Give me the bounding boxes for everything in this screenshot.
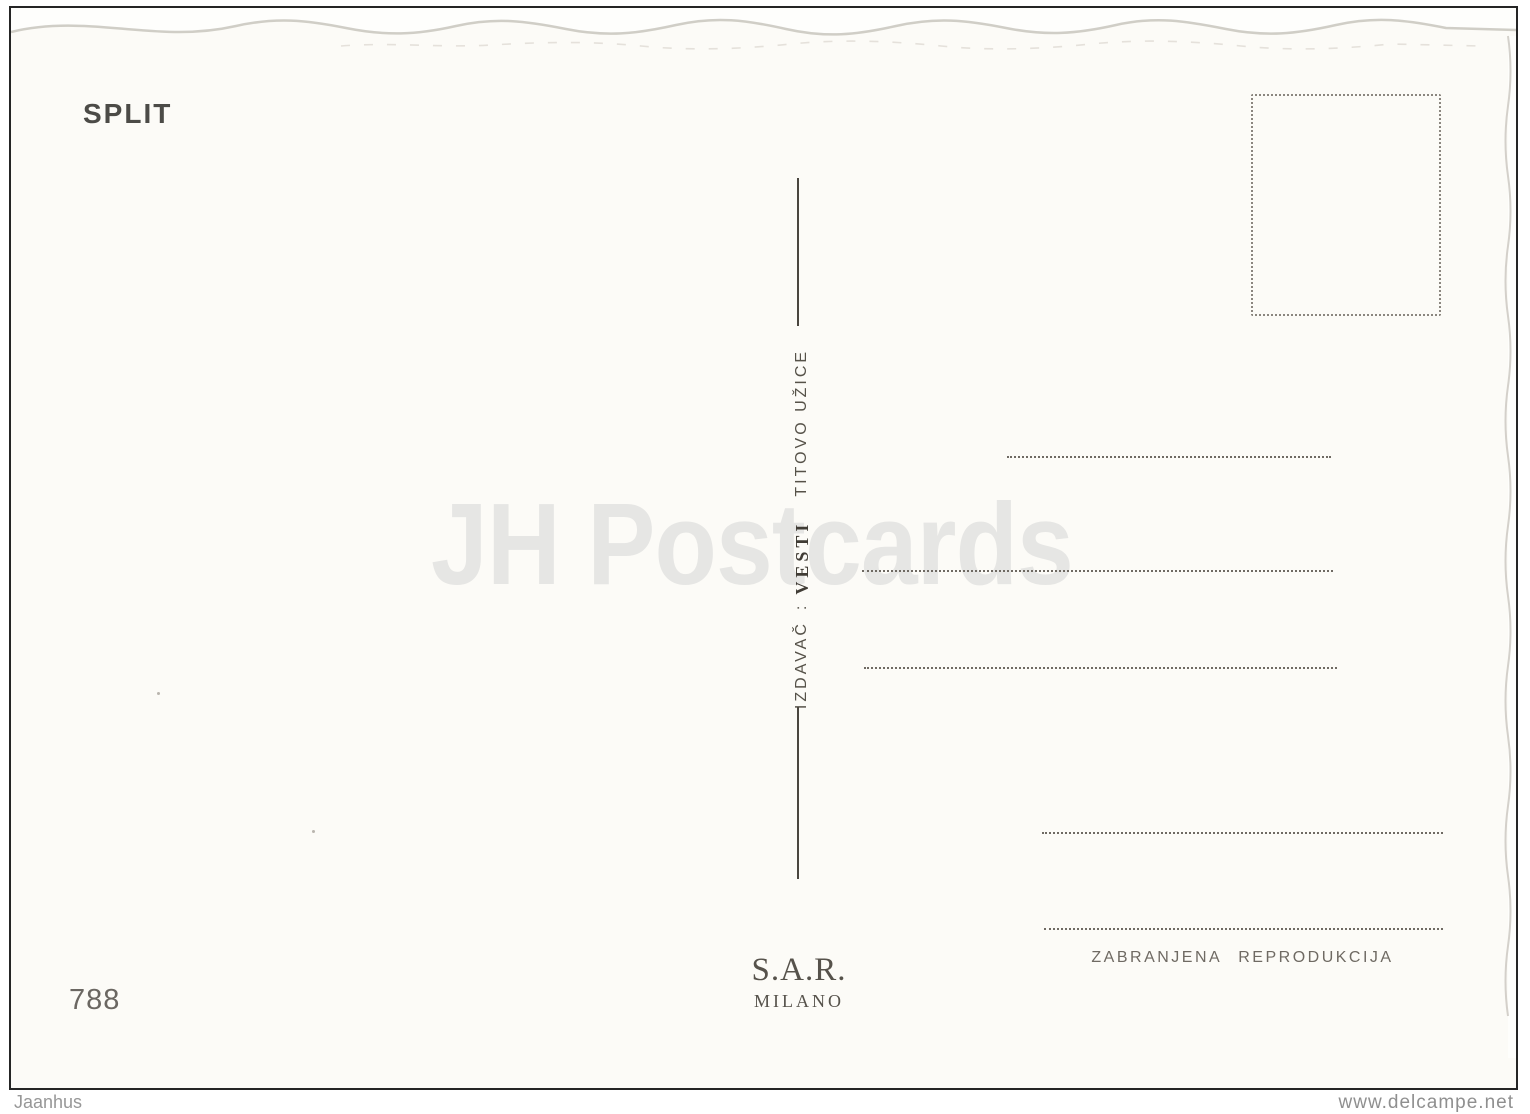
postcard-back-scan: JH Postcards SPLIT IZDAVAČ : VESTI TITOV… (9, 6, 1518, 1090)
publisher-label: IZDAVAČ (793, 621, 811, 709)
scan-speck (157, 692, 160, 695)
address-line-5 (1044, 928, 1443, 930)
printer-city: MILANO (699, 991, 899, 1012)
center-divider-upper (797, 178, 799, 326)
stamp-box (1251, 94, 1441, 316)
publisher-credit: IZDAVAČ : VESTI TITOVO UŽICE (791, 369, 813, 689)
publisher-separator: : (793, 606, 811, 610)
address-line-1 (1007, 456, 1331, 458)
reproduction-notice: ZABRANJENA REPRODUKCIJA (1042, 949, 1443, 967)
printer-credit: S.A.R. MILANO (699, 952, 899, 1012)
address-line-4 (1042, 832, 1443, 834)
watermark-text: JH Postcards (387, 486, 1117, 602)
footer-site-url: www.delcampe.net (1339, 1092, 1514, 1114)
address-line-3 (864, 667, 1337, 669)
center-divider-lower (797, 707, 799, 879)
printer-name: S.A.R. (699, 952, 899, 988)
publisher-name: VESTI (792, 521, 813, 595)
postcard-title: SPLIT (83, 98, 172, 130)
scan-speck (312, 830, 315, 833)
publisher-city: TITOVO UŽICE (793, 349, 811, 497)
card-number: 788 (69, 984, 120, 1017)
address-line-2 (862, 570, 1333, 572)
